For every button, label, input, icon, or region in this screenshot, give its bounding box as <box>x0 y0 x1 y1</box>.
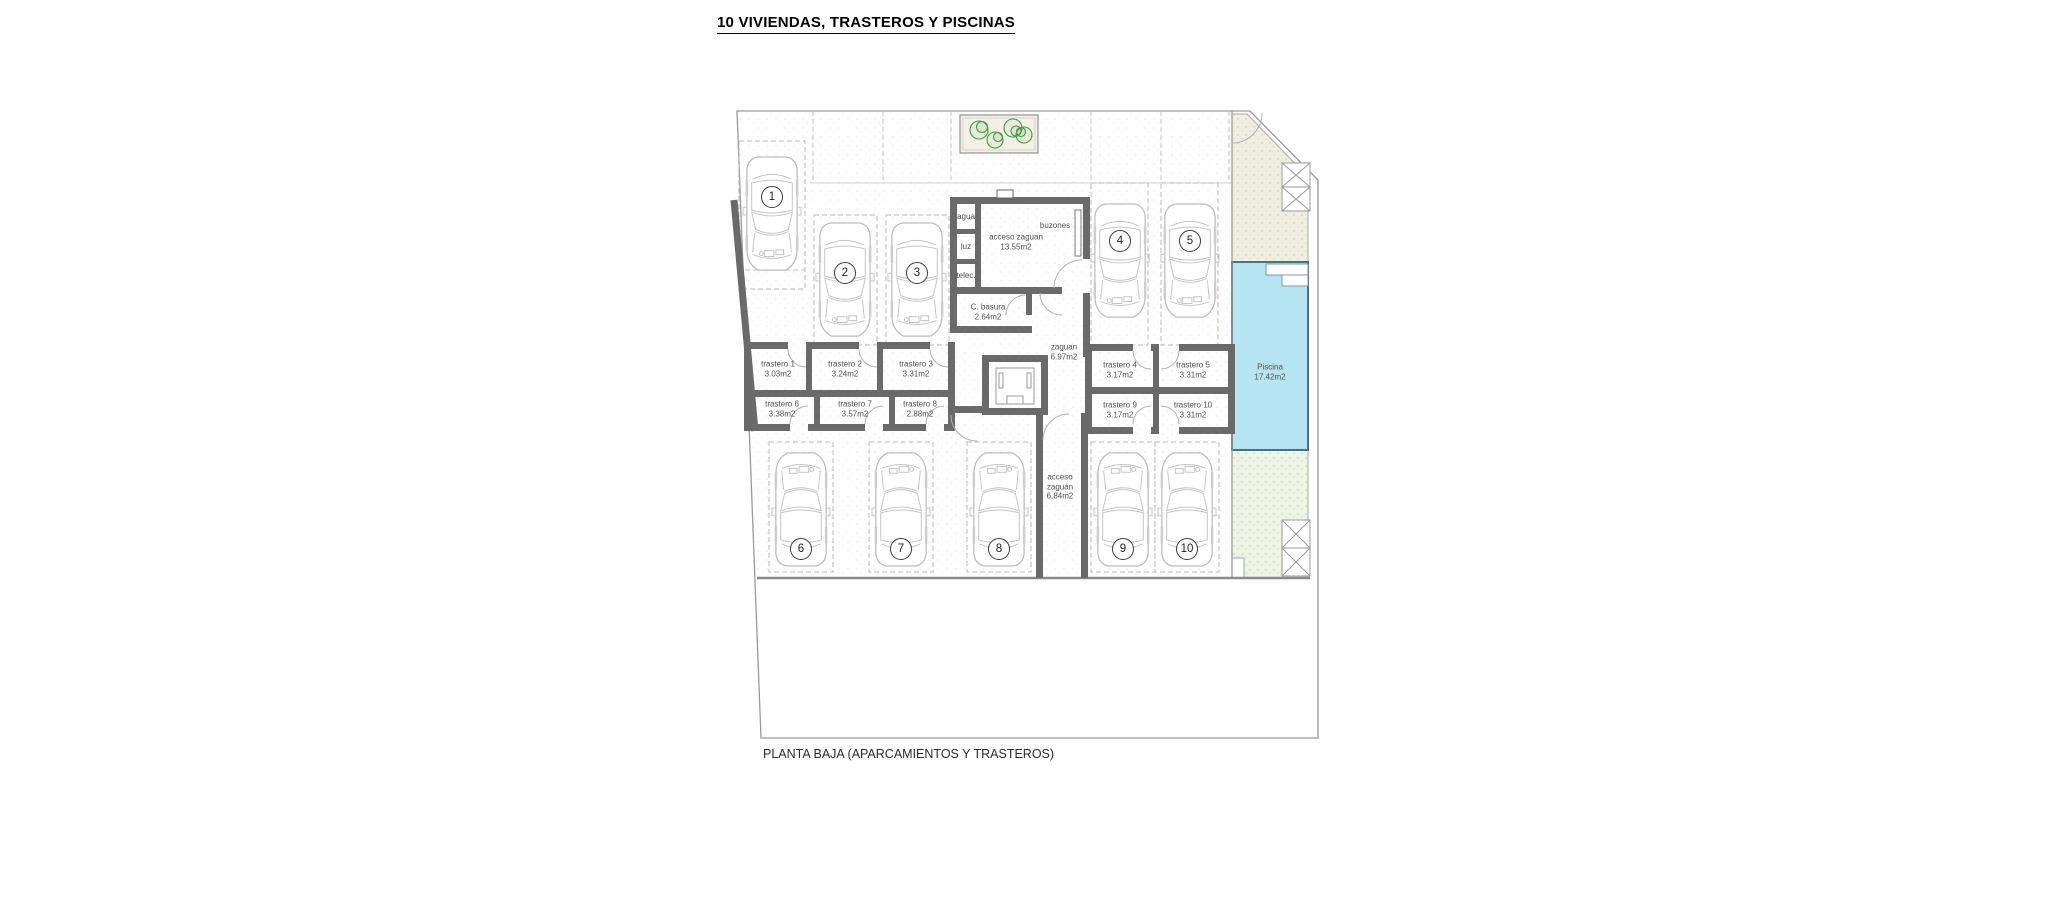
room-label-trastero-10: trastero 103.31m2 <box>1174 400 1212 419</box>
room-label-trastero-8: trastero 82.88m2 <box>903 399 937 418</box>
parking-number-7: 7 <box>890 538 912 560</box>
car-icon <box>743 157 801 270</box>
floor-plan-page: 10 VIVIENDAS, TRASTEROS Y PISCINAS <box>0 0 2048 900</box>
mailboxes-strip <box>1075 210 1081 256</box>
room-label-basura: C. basura2.64m2 <box>971 302 1006 321</box>
parking-number-6: 6 <box>790 538 812 560</box>
parking-number-4: 4 <box>1109 230 1131 252</box>
parking-number-5: 5 <box>1179 230 1201 252</box>
room-label-trastero-4: trastero 43.17m2 <box>1103 360 1137 379</box>
room-label-trastero-3: trastero 33.31m2 <box>899 359 933 378</box>
pool <box>1232 262 1308 450</box>
plan-caption: PLANTA BAJA (APARCAMIENTOS Y TRASTEROS) <box>763 747 1054 761</box>
room-label-zaguan: zaguan6.97m2 <box>1051 342 1078 361</box>
room-label-trastero-9: trastero 93.17m2 <box>1103 400 1137 419</box>
parking-number-10: 10 <box>1176 538 1198 560</box>
garden-notch <box>1232 558 1244 578</box>
room-label-trastero-2: trastero 23.24m2 <box>828 359 862 378</box>
parking-number-3: 3 <box>906 262 928 284</box>
floor-plan-drawing <box>715 100 1330 750</box>
room-label-luz: luz <box>961 242 971 252</box>
room-label-telec: telec. <box>956 271 975 281</box>
room-label-acceso-zaguan: acceso zaguan13.55m2 <box>989 232 1043 251</box>
planter <box>960 115 1038 153</box>
room-label-agua: agua <box>957 212 975 222</box>
room-label-piscina: Piscina17.42m2 <box>1254 362 1285 381</box>
parking-number-9: 9 <box>1112 538 1134 560</box>
parking-number-8: 8 <box>988 538 1010 560</box>
elevator <box>996 368 1034 404</box>
entry-threshold <box>997 190 1013 198</box>
room-label-trastero-1: trastero 13.03m2 <box>761 359 795 378</box>
parking-number-1: 1 <box>761 186 783 208</box>
room-label-buzones: buzones <box>1040 221 1070 231</box>
room-label-trastero-6: trastero 63.38m2 <box>765 399 799 418</box>
car-icon <box>1161 204 1219 317</box>
parking-number-2: 2 <box>834 262 856 284</box>
car-icon <box>1091 204 1149 317</box>
room-label-trastero-7: trastero 73.57m2 <box>838 399 872 418</box>
page-title: 10 VIVIENDAS, TRASTEROS Y PISCINAS <box>717 14 1015 34</box>
room-label-acceso-zaguan-sur: accesozaguán6.84m2 <box>1047 473 1074 502</box>
room-label-trastero-5: trastero 53.31m2 <box>1176 360 1210 379</box>
